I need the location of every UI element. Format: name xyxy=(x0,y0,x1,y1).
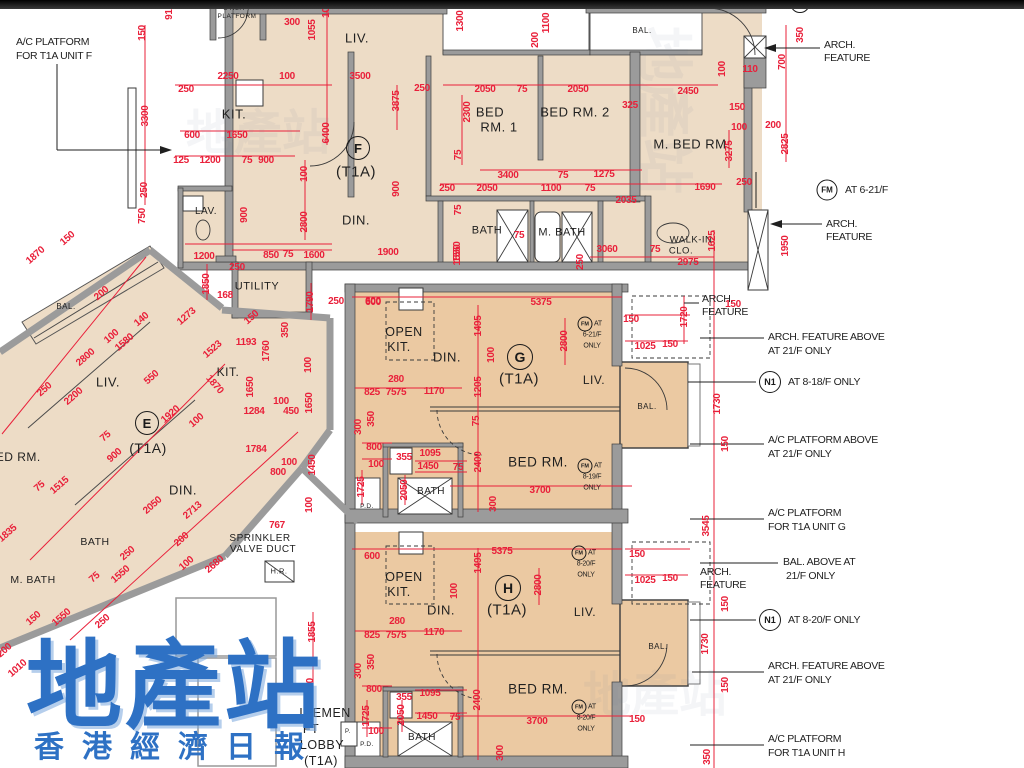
dimension-label: 1275 xyxy=(593,170,614,180)
dimension-label: 100 xyxy=(487,347,497,363)
dimension-label: 100 xyxy=(450,583,460,599)
room-label: DIN. xyxy=(433,351,461,364)
room-label: SPRINKLER xyxy=(229,534,290,544)
dimension-label: 3300 xyxy=(141,105,151,126)
dimension-label: 3700 xyxy=(526,717,547,727)
room-label: M. BATH xyxy=(538,228,585,239)
dimension-label: 1725 xyxy=(357,476,367,497)
dimension-label: 75 xyxy=(242,156,253,166)
dimension-label: 75 xyxy=(396,388,407,398)
annotation-label: A/C PLATFORM xyxy=(768,508,841,519)
dimension-label: 1730 xyxy=(713,393,723,414)
unit-badge-fm: FM xyxy=(817,180,838,201)
dimension-label: 100 xyxy=(731,123,747,133)
room-label: CLO. xyxy=(669,246,693,256)
dimension-label: 2400 xyxy=(474,451,484,472)
dimension-label: 1100 xyxy=(542,13,552,34)
dimension-label: 1025 xyxy=(634,576,655,586)
room-label: H.R. xyxy=(271,567,288,575)
dimension-label: 300 xyxy=(354,419,364,435)
room-label: BATH xyxy=(472,226,503,237)
room-label: LAV. xyxy=(195,207,217,217)
dimension-label: 2050 xyxy=(474,85,495,95)
dimension-label: 280 xyxy=(388,375,404,385)
room-label: RM. 1 xyxy=(480,121,517,134)
dimension-label: 75 xyxy=(453,463,464,473)
dimension-label: 250 xyxy=(229,263,245,273)
room-label: (T1A) xyxy=(129,441,167,455)
dimension-label: 3400 xyxy=(497,171,518,181)
dimension-label: 1193 xyxy=(236,338,257,348)
room-label: DIN. xyxy=(169,484,197,497)
dimension-label: 2050 xyxy=(400,479,410,500)
annotation-label: AT 8-18/F ONLY xyxy=(788,377,860,388)
dimension-label: 100 xyxy=(300,166,310,182)
annotation-label: ARCH. xyxy=(824,40,855,51)
annotation-label: 8-19/F xyxy=(583,474,601,481)
dimension-label: 250 xyxy=(736,178,752,188)
room-label: DIN. xyxy=(342,214,370,227)
room-label: OPEN xyxy=(385,326,422,339)
unit-badge-g: G xyxy=(507,344,533,370)
dimension-label: 825 xyxy=(364,631,380,641)
dimension-label: 1495 xyxy=(474,552,484,573)
room-label: WALK-IN xyxy=(670,235,713,245)
dimension-label: 3060 xyxy=(596,245,617,255)
annotation-label: 8-20/F xyxy=(577,715,595,722)
dimension-label: 5375 xyxy=(530,298,551,308)
annotation-label: AT 21/F ONLY xyxy=(768,346,832,357)
annotation-label: ONLY xyxy=(583,485,600,492)
dimension-label: 355 xyxy=(396,693,412,703)
dimension-label: 75 xyxy=(454,150,464,161)
dimension-label: 750 xyxy=(138,208,148,224)
dimension-label: 1730 xyxy=(701,633,711,654)
room-label: (T1A) xyxy=(487,603,527,618)
dimension-label: 200 xyxy=(531,32,541,48)
room-label: KIT. xyxy=(222,108,246,121)
annotation-label: BAL. ABOVE AT xyxy=(783,557,855,568)
dimension-label: 3275 xyxy=(725,140,735,161)
dimension-label: 3875 xyxy=(392,90,402,111)
dimension-label: 800 xyxy=(366,685,382,695)
room-label: BAL. xyxy=(56,303,75,311)
floorplan-page: 地產站 香港經濟日報 UTILITYPLATFORMKIT.LIV.DIN.BE… xyxy=(0,0,1024,768)
dimension-label: 1950 xyxy=(781,235,791,256)
dimension-label: 1600 xyxy=(303,251,324,261)
annotation-label: FEATURE xyxy=(826,232,872,243)
dimension-label: 2450 xyxy=(677,87,698,97)
dimension-label: 1850 xyxy=(202,273,212,294)
dimension-label: 355 xyxy=(396,453,412,463)
annotation-label: A/C PLATFORM xyxy=(768,734,841,745)
dimension-label: 150 xyxy=(629,550,645,560)
annotation-label: FEATURE xyxy=(700,580,746,591)
dimension-label: 75 xyxy=(558,171,569,181)
room-label: BATH xyxy=(80,537,109,548)
dimension-label: 75 xyxy=(386,631,397,641)
dimension-label: 3700 xyxy=(529,486,550,496)
dimension-label: 75 xyxy=(450,713,461,723)
room-label: KIT. xyxy=(387,586,411,599)
dimension-label: 1784 xyxy=(245,445,266,455)
dimension-label: 600 xyxy=(365,298,381,308)
dimension-label: 2050 xyxy=(567,85,588,95)
room-label: KIT. xyxy=(387,341,411,354)
dimension-label: 800 xyxy=(270,468,286,478)
room-label: M. BATH xyxy=(10,575,55,586)
annotation-label: 8-20/F xyxy=(577,561,595,568)
room-label: PLATFORM xyxy=(218,14,257,21)
dimension-label: 250 xyxy=(414,84,430,94)
dimension-label: 1450 xyxy=(416,712,437,722)
annotation-label: ARCH. xyxy=(700,567,731,578)
room-label: DIN. xyxy=(427,604,455,617)
unit-badge-n1: N1 xyxy=(759,371,781,393)
room-label: BED RM. xyxy=(508,682,568,696)
room-label: BED xyxy=(476,106,504,119)
room-label: BED RM. xyxy=(0,451,41,463)
room-label: P. xyxy=(345,729,351,735)
dimension-label: 75 xyxy=(472,416,482,427)
room-label: BATH xyxy=(408,733,436,743)
dimension-label: 250 xyxy=(178,85,194,95)
dimension-label: 150 xyxy=(623,315,639,325)
dimension-label: 1300 xyxy=(456,10,466,31)
dimension-label: 75 xyxy=(396,631,407,641)
dimension-label: 100 xyxy=(368,727,384,737)
room-label: OPEN xyxy=(385,571,422,584)
dimension-label: 1450 xyxy=(308,454,318,475)
annotation-label: ONLY xyxy=(583,343,600,350)
dimension-label: 600 xyxy=(184,131,200,141)
dimension-label: 1025 xyxy=(634,342,655,352)
dimension-label: 75 xyxy=(514,231,525,241)
dimension-label: 800 xyxy=(366,443,382,453)
dimension-label: 100 xyxy=(279,72,295,82)
room-label: LIV. xyxy=(96,376,120,389)
room-label: LIV. xyxy=(345,32,369,45)
room-label: KIT. xyxy=(217,366,240,378)
annotation-label: 6-21/F xyxy=(583,332,601,339)
room-label: BAL. xyxy=(637,403,656,411)
dimension-label: 3500 xyxy=(349,72,370,82)
annotation-label: FEATURE xyxy=(824,53,870,64)
dimension-label: 350 xyxy=(796,27,806,43)
top-bar xyxy=(0,0,1024,9)
dimension-label: 1100 xyxy=(541,184,562,194)
dimension-label: 1725 xyxy=(362,705,372,726)
annotation-label: A/C PLATFORM xyxy=(16,37,89,48)
dimension-label: 100 xyxy=(305,497,315,513)
dimension-label: 900 xyxy=(240,207,250,223)
dimension-label: 1205 xyxy=(474,376,484,397)
faint-watermark: 地產站 xyxy=(186,93,330,163)
dimension-label: 2825 xyxy=(781,133,791,154)
dimension-label: 150 xyxy=(662,574,678,584)
annotation-label: ARCH. xyxy=(826,219,857,230)
dimension-label: 75 xyxy=(454,205,464,216)
dimension-label: 150 xyxy=(721,436,731,452)
dimension-label: 100 xyxy=(368,460,384,470)
dimension-label: 350 xyxy=(367,411,377,427)
room-label: (T1A) xyxy=(336,165,376,180)
dimension-label: 2035 xyxy=(615,196,636,206)
dimension-label: 250 xyxy=(576,254,586,270)
dimension-label: 250 xyxy=(328,297,344,307)
annotation-label: ONLY xyxy=(577,572,594,579)
annotation-label: AT xyxy=(594,463,602,470)
dimension-label: 150 xyxy=(662,340,678,350)
unit-badge-fm: FM xyxy=(572,546,587,561)
room-label: UTILITY xyxy=(235,282,279,293)
dimension-label: 250 xyxy=(439,184,455,194)
dimension-label: 1495 xyxy=(474,315,484,336)
dimension-label: 75 xyxy=(386,388,397,398)
room-label: P.D. xyxy=(360,742,374,749)
dimension-label: 100 xyxy=(718,61,728,77)
dimension-label: 1095 xyxy=(419,449,440,459)
dimension-label: 168 xyxy=(217,291,233,301)
dimension-label: 1760 xyxy=(262,340,272,361)
room-label: BAL. xyxy=(648,643,667,651)
dimension-label: 1170 xyxy=(424,628,445,638)
annotation-label: AT 21/F ONLY xyxy=(768,449,832,460)
unit-badge-n1: N1 xyxy=(759,609,781,631)
unit-badge-e: E xyxy=(135,411,159,435)
dimension-label: 5375 xyxy=(491,547,512,557)
unit-badge-fm: FM xyxy=(578,459,593,474)
dimension-label: 900 xyxy=(258,156,274,166)
room-label: M. BED RM. xyxy=(653,138,730,151)
unit-badge-fm: FM xyxy=(572,700,587,715)
dimension-label: 2975 xyxy=(677,258,698,268)
dimension-label: 1284 xyxy=(243,407,264,417)
dimension-label: 300 xyxy=(284,18,300,28)
dimension-label: 1170 xyxy=(424,387,445,397)
annotation-label: A/C PLATFORM ABOVE xyxy=(768,435,878,446)
annotation-label: ARCH. FEATURE ABOVE xyxy=(768,661,885,672)
dimension-label: 2800 xyxy=(560,330,570,351)
dimension-label: 450 xyxy=(283,407,299,417)
dimension-label: 1625 xyxy=(708,230,718,251)
room-label: LIV. xyxy=(583,374,605,386)
annotation-label: FOR T1A UNIT F xyxy=(16,51,92,62)
dimension-label: 2050 xyxy=(476,184,497,194)
dimension-label: 2800 xyxy=(300,211,310,232)
annotation-label: FOR T1A UNIT H xyxy=(768,748,845,759)
dimension-label: 1200 xyxy=(199,156,220,166)
dimension-label: 2050 xyxy=(397,704,407,725)
dimension-label: 850 xyxy=(263,251,279,261)
unit-badge-h: H xyxy=(495,575,521,601)
dimension-label: 280 xyxy=(389,617,405,627)
faint-watermark: 地產站 xyxy=(628,26,709,194)
room-label: VALVE DUCT xyxy=(230,545,296,555)
room-label: (T1A) xyxy=(499,372,539,387)
dimension-label: 100 xyxy=(304,357,314,373)
dimension-label: 350 xyxy=(281,322,291,338)
dimension-label: 250 xyxy=(140,182,150,198)
room-label: BED RM. 2 xyxy=(540,106,610,119)
dimension-label: 825 xyxy=(364,388,380,398)
dimension-label: 1900 xyxy=(377,248,398,258)
annotation-label: ARCH. xyxy=(702,294,733,305)
dimension-label: 350 xyxy=(367,654,377,670)
dimension-label: 150 xyxy=(721,596,731,612)
dimension-label: 1200 xyxy=(193,252,214,262)
annotation-label: AT xyxy=(588,704,596,711)
dimension-label: 767 xyxy=(269,521,285,531)
dimension-label: 1650 xyxy=(246,376,256,397)
dimension-label: 2400 xyxy=(473,689,483,710)
dimension-label: 900 xyxy=(392,181,402,197)
dimension-label: 325 xyxy=(622,101,638,111)
dimension-label: 300 xyxy=(496,745,506,761)
dimension-label: 2250 xyxy=(217,72,238,82)
annotation-label: 21/F ONLY xyxy=(786,571,835,582)
dimension-label: 700 xyxy=(778,54,788,70)
dimension-label: 350 xyxy=(703,749,713,765)
room-label: P.D. xyxy=(360,504,374,511)
dimension-label: 1450 xyxy=(417,462,438,472)
dimension-label: 150 xyxy=(729,103,745,113)
annotation-label: AT xyxy=(594,321,602,328)
dimension-label: 125 xyxy=(173,156,189,166)
dimension-label: 1690 xyxy=(694,183,715,193)
annotation-label: ONLY xyxy=(577,726,594,733)
faint-watermark: 地產站 xyxy=(583,655,727,725)
dimension-label: 75 xyxy=(517,85,528,95)
dimension-label: 1095 xyxy=(419,689,440,699)
dimension-label: 75 xyxy=(585,184,596,194)
unit-badge-fm: FM xyxy=(578,317,593,332)
dimension-label: 150 xyxy=(138,25,148,41)
annotation-label: FOR T1A UNIT G xyxy=(768,522,846,533)
dimension-label: 150 xyxy=(629,715,645,725)
room-label: BATH xyxy=(417,487,445,497)
room-label: BED RM. xyxy=(508,455,568,469)
dimension-label: 1550 xyxy=(453,244,463,265)
annotation-label: FEATURE xyxy=(702,307,748,318)
dimension-label: 6400 xyxy=(322,122,332,143)
dimension-label: 200 xyxy=(765,121,781,131)
dimension-label: 1055 xyxy=(308,19,318,40)
dimension-label: 1720 xyxy=(680,306,690,327)
dimension-label: 150 xyxy=(721,677,731,693)
dimension-label: 1790 xyxy=(306,291,316,312)
dimension-label: 300 xyxy=(354,663,364,679)
unit-badge-f: F xyxy=(346,136,370,160)
dimension-label: 2300 xyxy=(463,101,473,122)
dimension-label: 1650 xyxy=(226,131,247,141)
annotation-label: AT 21/F ONLY xyxy=(768,675,832,686)
dimension-label: 300 xyxy=(489,496,499,512)
dimension-label: 1650 xyxy=(305,392,315,413)
dimension-label: 2800 xyxy=(534,574,544,595)
dimension-label: 600 xyxy=(364,552,380,562)
annotation-label: AT 6-21/F xyxy=(845,185,888,196)
dimension-label: 3545 xyxy=(702,515,712,536)
dimension-label: 110 xyxy=(742,65,757,75)
dimension-label: 75 xyxy=(650,245,661,255)
room-label: LIV. xyxy=(574,606,596,618)
annotation-label: AT 8-20/F ONLY xyxy=(788,615,860,626)
annotation-label: ARCH. FEATURE ABOVE xyxy=(768,332,885,343)
room-label: BAL. xyxy=(632,27,651,35)
dimension-label: 75 xyxy=(283,250,294,260)
watermark-subtitle: 香港經濟日報 xyxy=(34,722,322,766)
annotation-label: AT xyxy=(588,550,596,557)
